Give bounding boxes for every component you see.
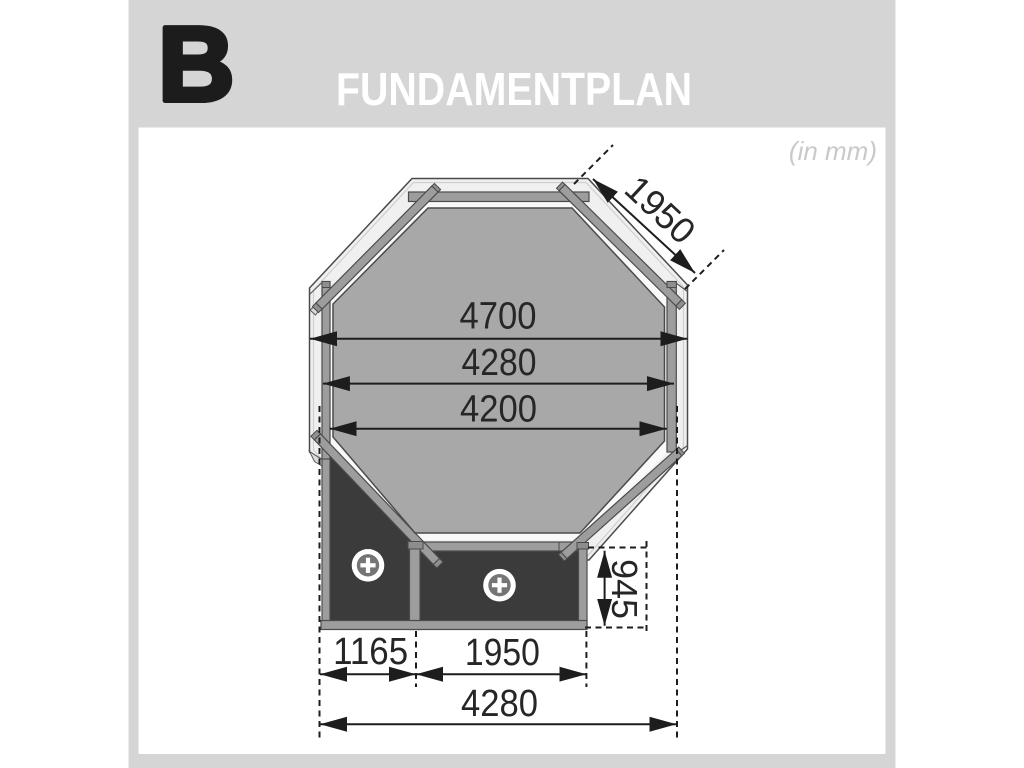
svg-text:945: 945	[604, 559, 645, 619]
svg-text:4200: 4200	[460, 389, 537, 431]
svg-text:4280: 4280	[461, 683, 538, 725]
svg-text:B: B	[158, 6, 235, 124]
svg-text:4280: 4280	[462, 342, 537, 384]
svg-text:1165: 1165	[333, 631, 408, 673]
svg-text:(in mm): (in mm)	[789, 136, 877, 166]
svg-text:4700: 4700	[460, 296, 537, 338]
svg-text:FUNDAMENTPLAN: FUNDAMENTPLAN	[336, 63, 692, 115]
svg-text:1950: 1950	[465, 632, 540, 674]
